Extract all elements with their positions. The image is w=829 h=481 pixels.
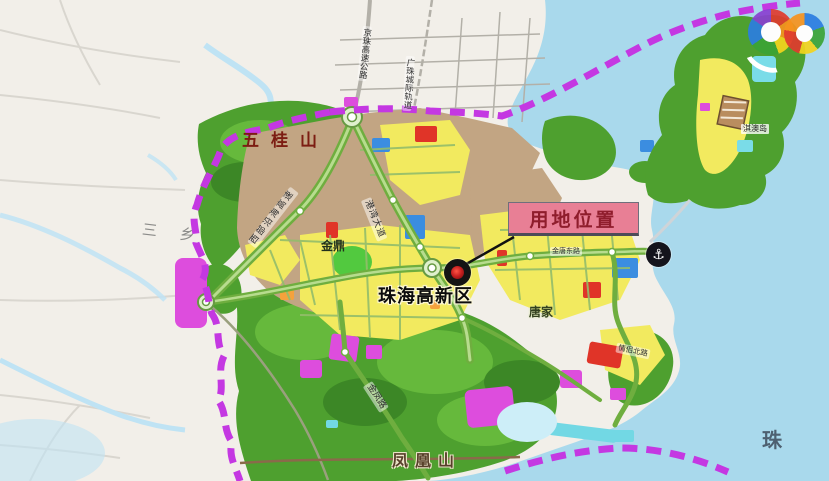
site-location-callout: 用地位置 bbox=[508, 202, 639, 236]
label-jintang-east-road: 金唐东路 bbox=[550, 247, 582, 256]
label-fenghuang-mountain: 凤凰山 bbox=[392, 453, 461, 469]
label-zhuhai-hightech-zone: 珠海高新区 bbox=[378, 288, 473, 306]
label-zhu-partial: 珠 bbox=[762, 430, 782, 450]
logo-ring-left-hole bbox=[761, 22, 781, 42]
watermark-logo bbox=[744, 5, 828, 63]
label-tangjia: 唐家 bbox=[529, 306, 553, 318]
logo-ring-right-hole bbox=[796, 25, 813, 42]
site-location-label: 用地位置 bbox=[529, 205, 617, 232]
site-location-marker-icon bbox=[444, 259, 471, 286]
label-wugui-mountain: 五桂山 bbox=[242, 133, 329, 150]
label-jinding: 金鼎 bbox=[321, 240, 345, 252]
port-anchor-icon: ⚓ bbox=[646, 242, 671, 267]
planning-map: 五桂山 三 乡 金鼎 珠海高新区 唐家 凤凰山 淇澳岛 珠 西部沿海高速 港湾大… bbox=[0, 0, 829, 481]
label-qiao-island: 淇澳岛 bbox=[741, 124, 769, 134]
